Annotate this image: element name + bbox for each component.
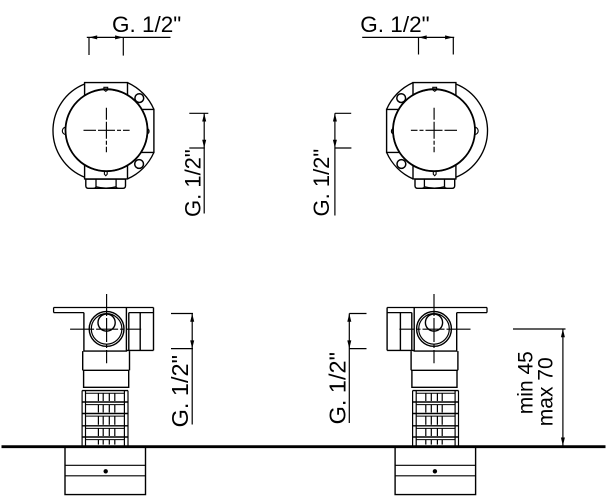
svg-text:G. 1/2": G. 1/2" — [325, 352, 351, 424]
svg-text:G. 1/2": G. 1/2" — [112, 12, 181, 37]
svg-text:G. 1/2": G. 1/2" — [167, 355, 193, 427]
svg-text:max 70: max 70 — [535, 357, 558, 426]
svg-text:G. 1/2": G. 1/2" — [309, 149, 334, 217]
svg-text:G. 1/2": G. 1/2" — [360, 12, 429, 37]
svg-text:G. 1/2": G. 1/2" — [180, 149, 205, 217]
